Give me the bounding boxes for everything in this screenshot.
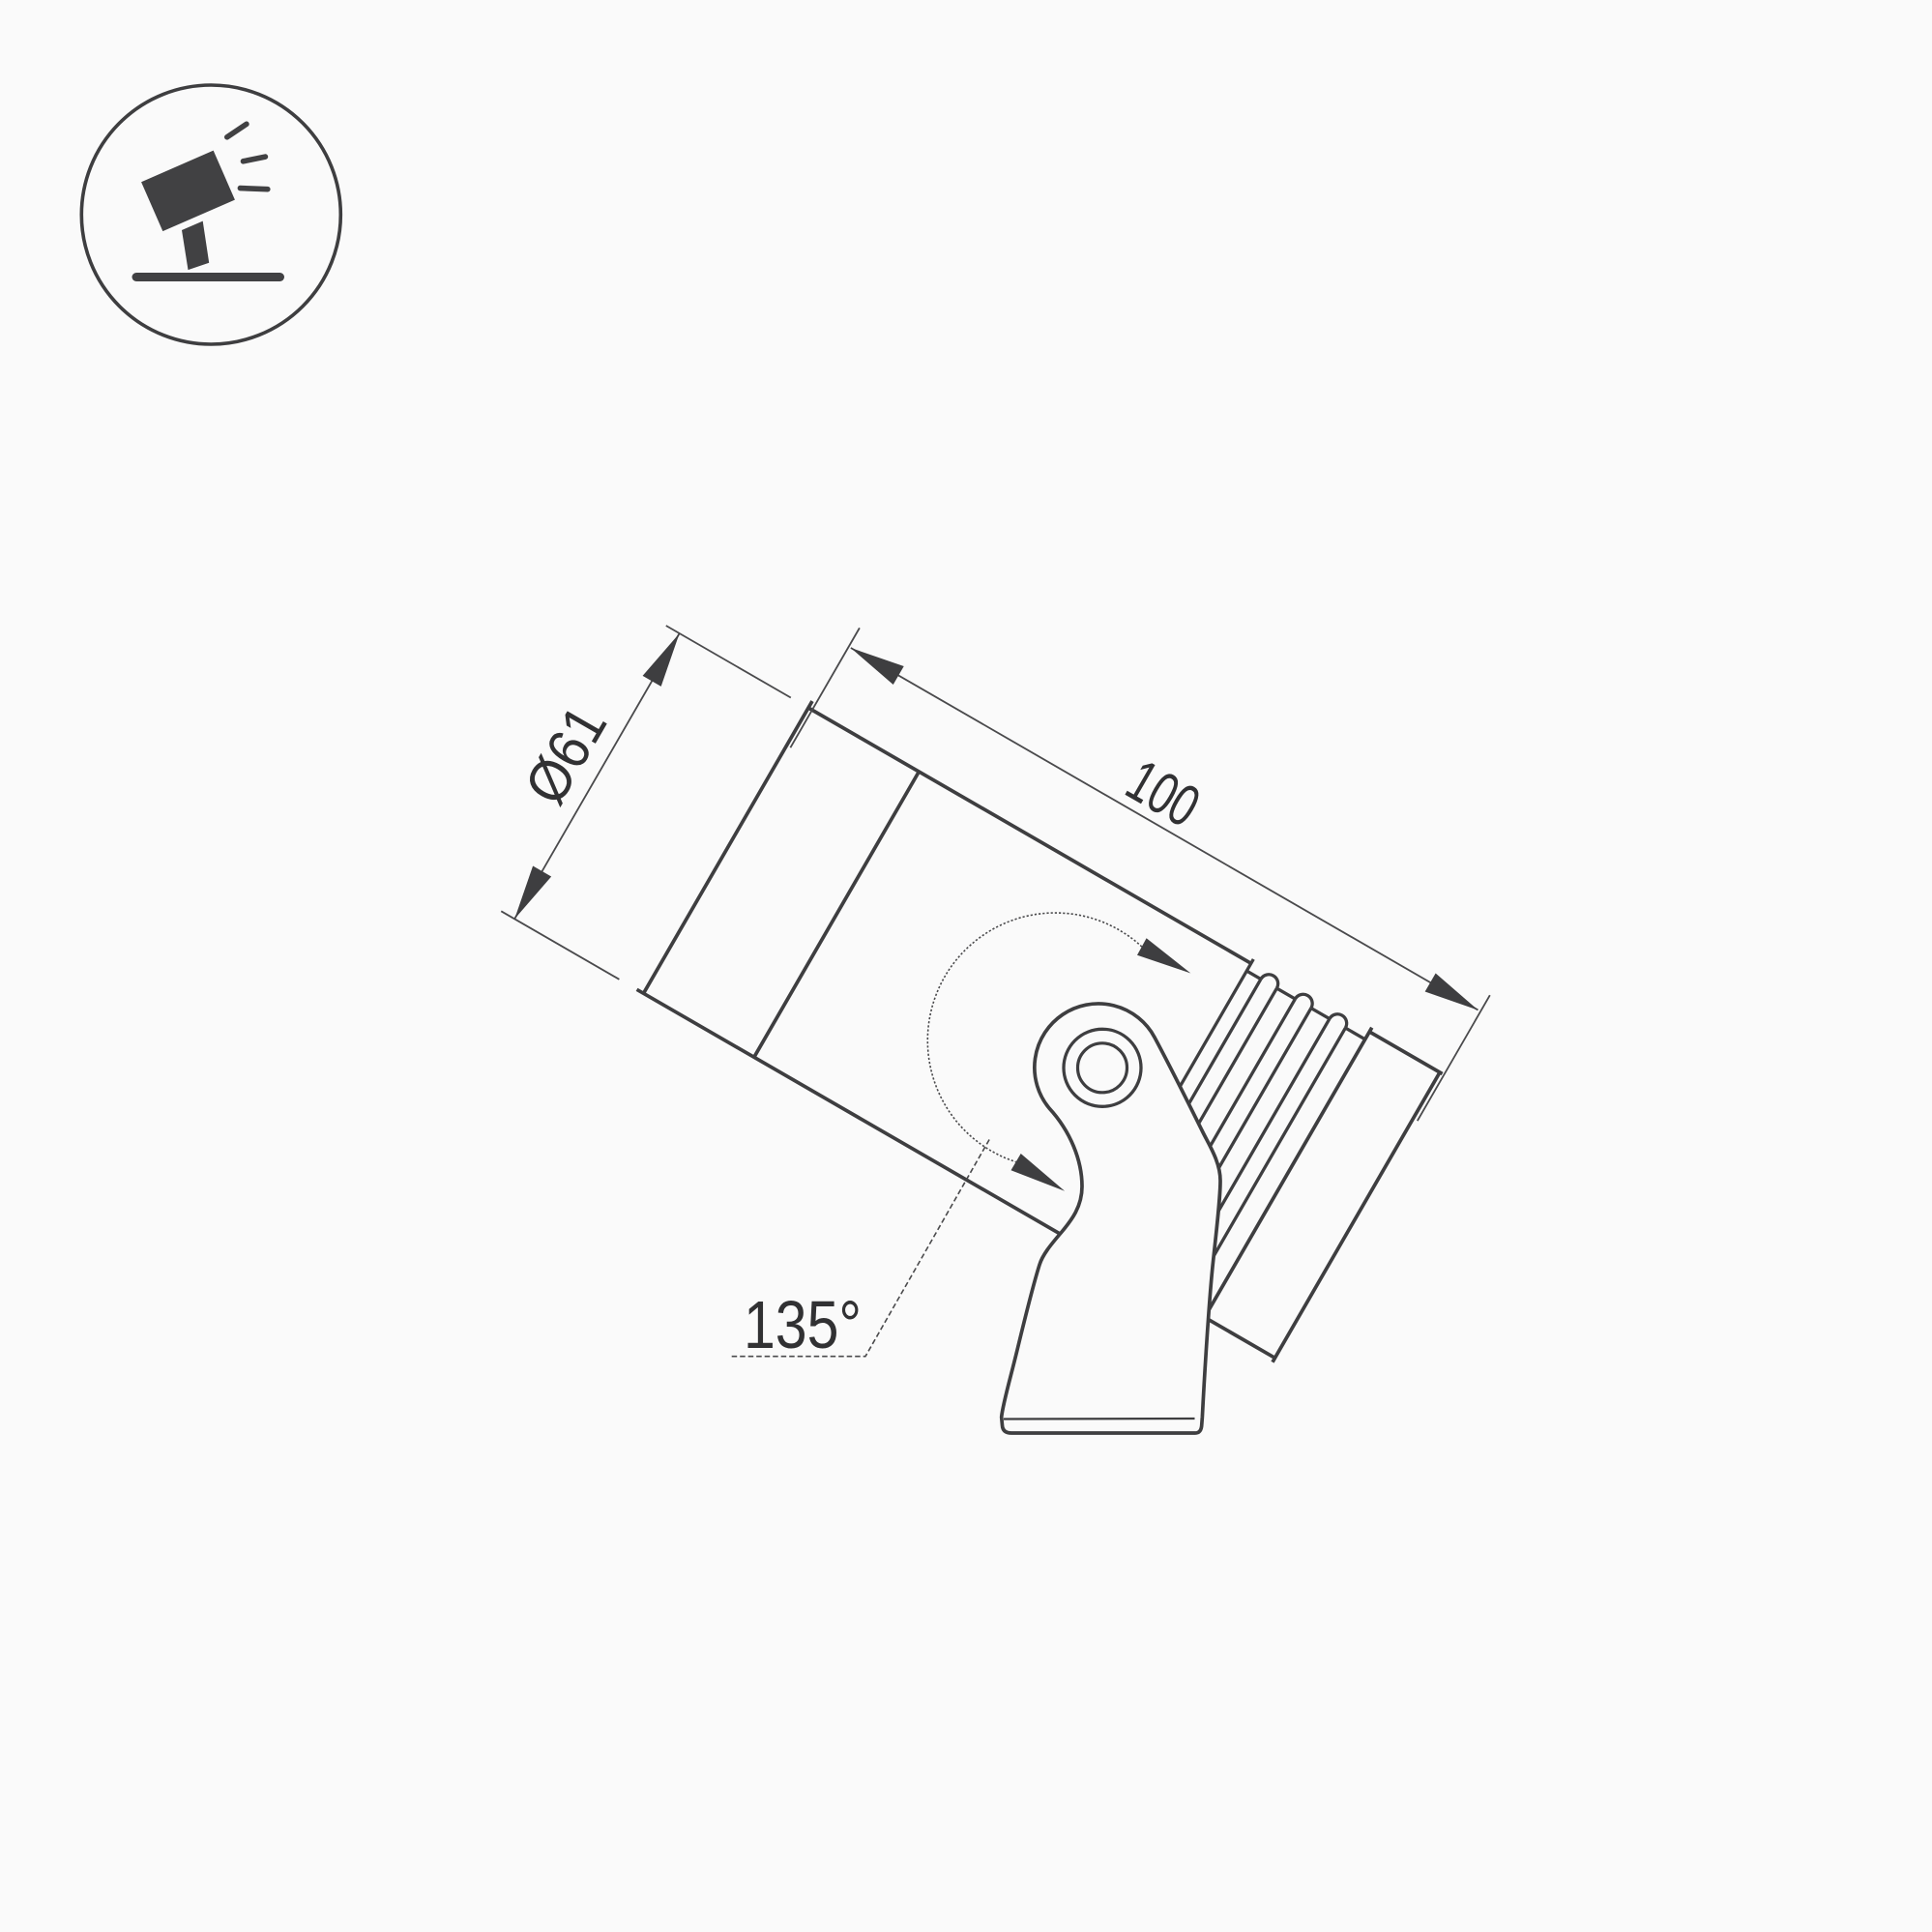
svg-text:135°: 135° [744,1287,862,1362]
